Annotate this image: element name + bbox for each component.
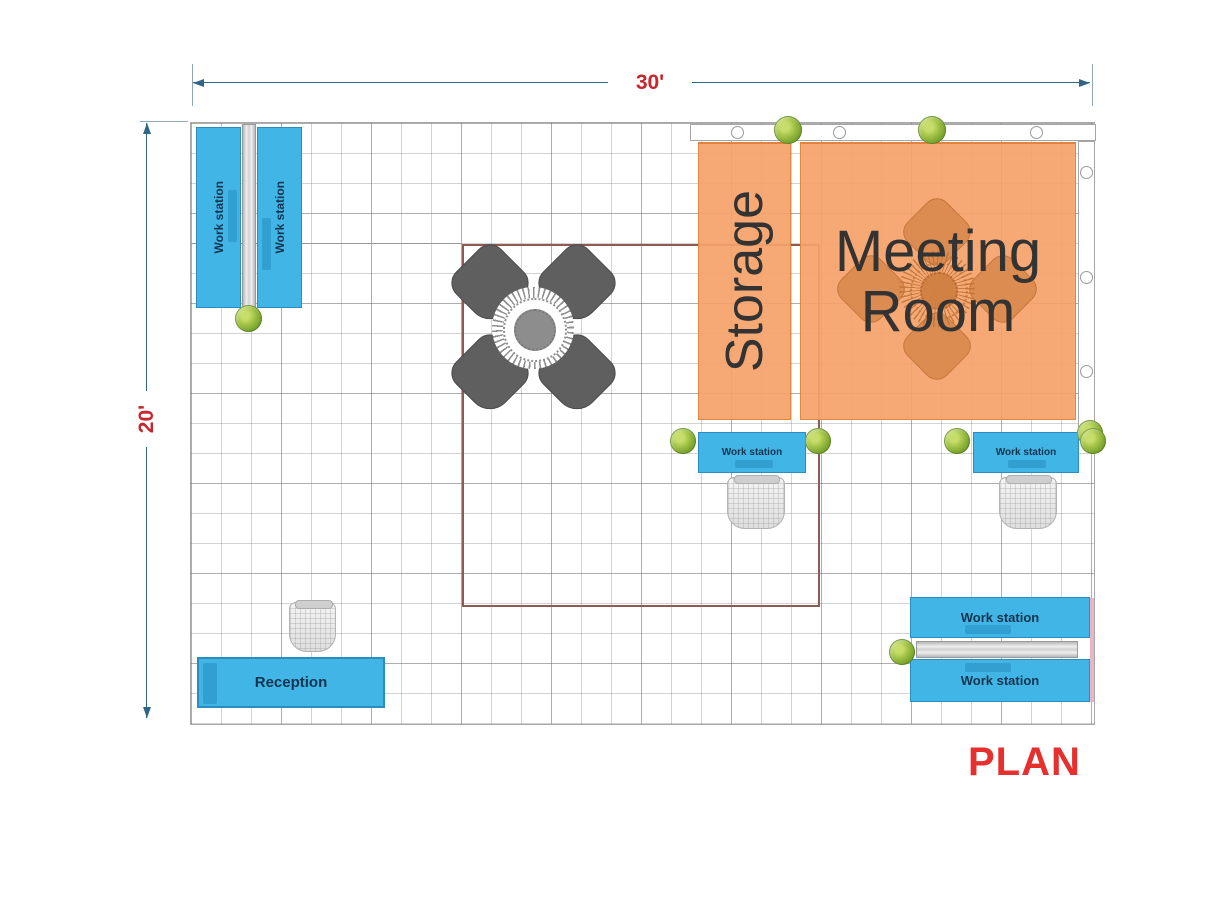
arrow-right-icon <box>1079 79 1090 87</box>
workstation-desk: Work station <box>973 432 1079 473</box>
column-marker <box>1030 126 1043 139</box>
arrow-up-icon <box>143 123 151 134</box>
desk-divider <box>242 124 256 310</box>
workstation-label: Work station <box>273 181 287 253</box>
workstation-label: Work station <box>996 447 1056 458</box>
office-chair <box>289 602 336 652</box>
office-chair <box>727 477 785 529</box>
column-marker <box>1080 365 1093 378</box>
column-marker <box>833 126 846 139</box>
dimension-height-label: 20' <box>132 391 162 447</box>
dimension-width-label: 30' <box>608 69 692 96</box>
room-storage: Storage <box>698 142 791 420</box>
office-chair <box>999 477 1057 529</box>
round-table <box>492 287 574 369</box>
dimension-tick <box>140 121 188 122</box>
storage-room-label: Storage <box>715 190 775 372</box>
column-marker <box>1080 271 1093 284</box>
plant-icon <box>670 428 696 454</box>
workstation-label: Work station <box>212 181 226 253</box>
dimension-tick <box>1092 64 1093 106</box>
room-meeting: Meeting Room <box>800 142 1076 420</box>
arrow-down-icon <box>143 707 151 718</box>
workstation-label: Work station <box>961 673 1040 688</box>
desk-edge-trim <box>1090 598 1094 702</box>
plant-icon <box>1080 428 1106 454</box>
column-marker <box>1080 166 1093 179</box>
plant-icon <box>805 428 831 454</box>
meeting-room-label: Meeting Room <box>801 222 1075 340</box>
workstation-desk: Work station <box>910 597 1090 638</box>
workstation-desk: Work station <box>257 127 302 308</box>
right-wall <box>1078 141 1095 431</box>
workstation-label: Work station <box>961 610 1040 625</box>
workstation-label: Work station <box>722 447 782 458</box>
plant-icon <box>944 428 970 454</box>
reception-label: Reception <box>255 674 328 691</box>
arrow-left-icon <box>193 79 204 87</box>
workstation-desk: Work station <box>698 432 806 473</box>
plant-icon <box>889 639 915 665</box>
workstation-desk: Work station <box>910 659 1090 702</box>
reception-desk: Reception <box>197 657 385 708</box>
plant-icon <box>774 116 802 144</box>
plant-icon <box>235 305 262 332</box>
column-marker <box>731 126 744 139</box>
desk-divider <box>916 641 1078 658</box>
plant-icon <box>918 116 946 144</box>
workstation-desk: Work station <box>196 127 241 308</box>
plan-title: PLAN <box>968 740 1081 785</box>
